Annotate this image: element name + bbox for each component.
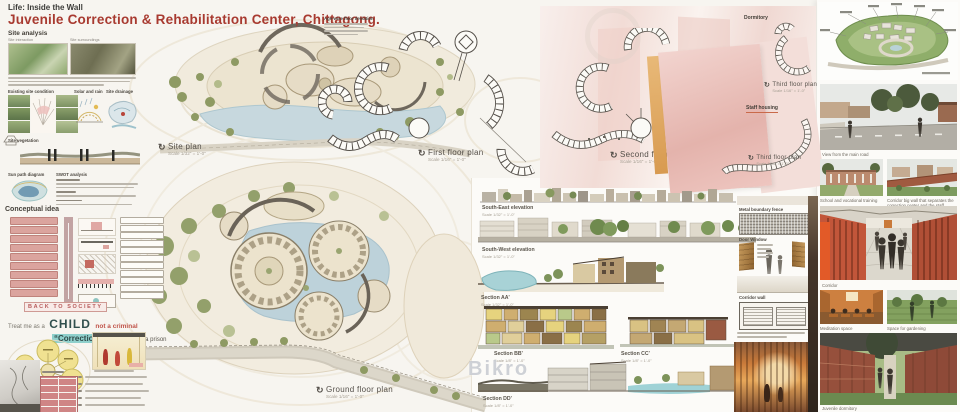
concept-sketch: [78, 218, 116, 236]
wall-sketch-strip: [737, 276, 811, 293]
site-surroundings-thumbnail: [70, 43, 136, 75]
sun-path-heading: Sun path diagram: [8, 172, 44, 177]
text-line: [56, 183, 138, 185]
south-east-elevation-drawing: [480, 184, 736, 204]
corridor-caption: Corridor: [822, 283, 838, 288]
site-drainage-diagram: [106, 95, 140, 135]
site-photo: [56, 95, 78, 107]
ground-floor-scale: Scale 1/16" = 1'-0": [326, 394, 393, 399]
vegetation-section-drawing: [20, 144, 140, 168]
concept-sketch: [78, 276, 114, 290]
section-dd-caption: Section DD' Scale 1/8" = 1'-0": [483, 396, 514, 408]
existing-site-condition-heading: Existing site condition: [8, 89, 54, 94]
dormitory-courtyard-render: [820, 333, 957, 405]
flow-step-right: [120, 270, 164, 277]
thumb-label-site-surroundings: Site surroundings: [70, 38, 100, 42]
text-line: [42, 371, 64, 373]
aa-label: Section AA': [481, 295, 514, 302]
flow-step: [10, 217, 58, 225]
flow-step: [10, 271, 58, 279]
flow-step-right: [120, 240, 164, 247]
dormitory-render-caption: Juvenile dormitory: [822, 406, 857, 411]
north-arrow-icon: ↻: [316, 386, 324, 395]
flow-step-right: [120, 285, 164, 292]
text-line: [56, 179, 80, 181]
site-plan-caption: ↻ Site planScale 1/32" = 1'-0": [158, 143, 206, 156]
text-line: [757, 252, 773, 254]
presentation-board: Life: Inside the Wall Juvenile Correctio…: [0, 0, 960, 412]
text-line: [85, 397, 141, 399]
flow-vertical-bar: [64, 217, 73, 309]
flow-step: [10, 262, 58, 270]
flow-step: [10, 280, 58, 288]
north-arrow-icon: ↻: [158, 143, 166, 152]
text-line: [56, 187, 134, 189]
text-line: [8, 81, 130, 83]
door-detail-figures: [760, 242, 786, 274]
flow-step: [10, 226, 58, 234]
site-photo: [56, 121, 78, 133]
site-interaction-thumbnail: [8, 43, 68, 75]
watermark: Bikro: [468, 358, 529, 381]
door-leaf: [739, 242, 754, 271]
list-number: [78, 376, 82, 378]
corridor-detail-render: [734, 342, 812, 412]
south-west-elevation-drawing: [478, 213, 756, 246]
list-number: [78, 383, 82, 385]
flow-step-right: [120, 255, 164, 262]
conceptual-idea-heading: Conceptual idea: [5, 206, 59, 213]
thumb-label-site-interaction: Site interaction: [8, 38, 33, 42]
flow-step-right: [120, 262, 164, 269]
north-arrow-icon: ↻: [748, 155, 754, 162]
corridor-wall-drawing: [739, 302, 811, 330]
gardening-render: [887, 290, 957, 324]
gardening-caption: Space for gardening: [887, 326, 926, 331]
corridor-wall-heading: Corridor wall: [739, 295, 766, 300]
flow-step: [10, 253, 58, 261]
text-line: [56, 204, 132, 206]
text-line: [85, 383, 143, 385]
text-line: [56, 200, 82, 202]
text-line: [85, 376, 147, 378]
program-table: [40, 376, 78, 412]
text-line: [85, 404, 145, 406]
list-number: [78, 404, 82, 406]
third-floor-a-scale: Scale 1/16" = 1'-0": [772, 88, 817, 93]
concept-sketch: [78, 238, 116, 252]
solar-rain-diagram: [76, 95, 103, 129]
text-line: [8, 84, 104, 86]
site-drainage-heading: Site drainage: [106, 89, 133, 94]
vegetation-house-sketch: [2, 128, 20, 146]
dd-label: Section DD': [483, 396, 514, 403]
flow-step-right: [120, 232, 164, 239]
ground-floor-caption: ↻ Ground floor planScale 1/16" = 1'-0": [316, 386, 393, 399]
flow-step: [10, 289, 58, 297]
text-line: [737, 332, 805, 334]
first-floor-plan-drawing: [318, 20, 546, 178]
detail-sketch-strip: [737, 196, 809, 205]
corridor-render: [820, 206, 957, 280]
flow-step-right: [120, 225, 164, 232]
aerial-site-render: [818, 2, 958, 80]
site-analysis-heading: Site analysis: [8, 30, 47, 37]
solar-and-rain-heading: Solar and rain: [74, 89, 103, 94]
school-render: [820, 159, 883, 196]
site-photo: [8, 108, 30, 120]
site-photo: [56, 108, 78, 120]
flow-step: [10, 235, 58, 243]
swot-heading: SWOT analysis: [56, 172, 87, 177]
section-bb-drawing: [478, 302, 614, 350]
flow-step-right: [120, 292, 164, 299]
text-line: [8, 77, 136, 79]
text-line: [757, 248, 771, 250]
big-wall-render: [887, 159, 957, 196]
text-line: [737, 336, 787, 338]
text-line: [85, 390, 149, 392]
fence-heading: Metal boundary fence: [739, 207, 783, 212]
flow-step-right: [120, 277, 164, 284]
fence-swatch: [739, 213, 809, 235]
north-arrow-icon: ↻: [764, 82, 770, 89]
main-road-caption: View from the main road: [822, 152, 869, 157]
school-caption: School and vocational training: [820, 198, 880, 203]
dd-scale: Scale 1/8" = 1'-0": [483, 403, 514, 408]
text-line: [757, 256, 769, 258]
list-number: [78, 390, 82, 392]
door-leaf: [792, 241, 805, 267]
meditation-render: [820, 290, 883, 324]
board-supertitle: Life: Inside the Wall: [8, 3, 83, 12]
dormitory-label: Dormitory: [744, 15, 768, 21]
site-condition-sketch: [31, 95, 55, 133]
sun-path-diagram: [8, 178, 50, 204]
panel-dark-edge: [808, 196, 818, 412]
treat-prefix: Treat me as a: [8, 324, 45, 330]
section-cc-drawing: [620, 312, 736, 350]
site-plan-scale: Scale 1/32" = 1'-0": [168, 151, 206, 156]
third-floor-a-caption: ↻ Third floor planScale 1/16" = 1'-0": [764, 82, 817, 93]
section-aa-drawing: [478, 252, 664, 294]
meditation-caption: Meditation space: [820, 326, 853, 331]
flow-step-right: [120, 247, 164, 254]
text-line: [757, 244, 773, 246]
text-line: [56, 195, 136, 197]
se-label: South-East elevation: [482, 205, 533, 212]
flow-step-right: [120, 217, 164, 224]
back-to-society-tag: BACK TO SOCIETY: [24, 302, 107, 312]
list-number: [78, 397, 82, 399]
text-line: [56, 191, 76, 193]
site-photo: [8, 95, 30, 107]
third-floor-b-caption: ↻ Third floor planScale 1/16" = 1'-0": [748, 155, 801, 166]
vocational-sketch: [92, 332, 146, 370]
site-plan-label: Site plan: [168, 143, 206, 151]
flow-step: [10, 244, 58, 252]
third-floor-plan-a-drawing: [764, 22, 820, 80]
ground-floor-label: Ground floor plan: [326, 386, 393, 394]
text-line: [94, 370, 134, 372]
concept-sketch: [78, 254, 116, 274]
third-floor-b-scale: Scale 1/16" = 1'-0": [756, 161, 801, 166]
main-road-render: [820, 84, 957, 150]
ground-floor-plan-drawing: [134, 156, 486, 412]
